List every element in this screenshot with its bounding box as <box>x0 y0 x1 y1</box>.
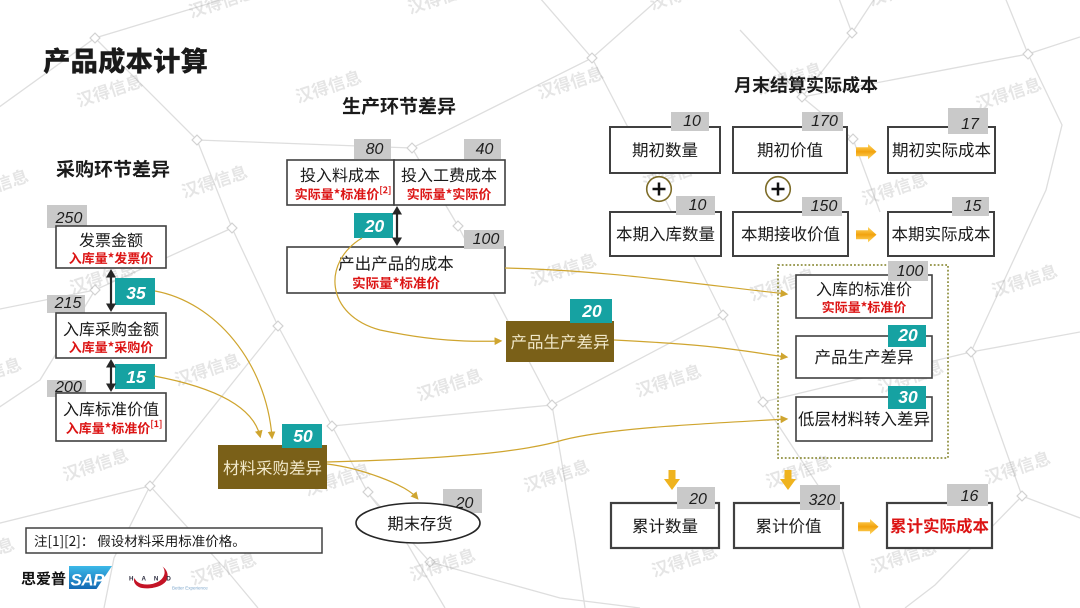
svg-text:10: 10 <box>689 197 707 214</box>
svg-text:150: 150 <box>811 198 838 215</box>
svg-text:20: 20 <box>688 491 707 508</box>
svg-text:HAND: HAND <box>129 576 179 583</box>
svg-text:320: 320 <box>809 492 836 509</box>
svg-text:100: 100 <box>897 263 924 280</box>
svg-text:15: 15 <box>964 198 982 215</box>
svg-text:20: 20 <box>581 301 602 321</box>
svg-text:50: 50 <box>293 426 313 446</box>
svg-text:100: 100 <box>473 231 500 248</box>
svg-text:20: 20 <box>364 216 385 236</box>
svg-text:20: 20 <box>897 325 918 345</box>
svg-text:Better Experience: Better Experience <box>172 586 208 591</box>
svg-text:250: 250 <box>55 210 83 227</box>
svg-text:215: 215 <box>54 295 82 312</box>
svg-text:30: 30 <box>898 387 918 407</box>
svg-text:40: 40 <box>476 141 494 158</box>
svg-text:35: 35 <box>126 283 146 303</box>
svg-text:17: 17 <box>961 116 980 133</box>
svg-text:15: 15 <box>126 367 146 387</box>
svg-text:10: 10 <box>683 113 701 130</box>
svg-text:16: 16 <box>961 488 979 505</box>
svg-text:170: 170 <box>811 113 838 130</box>
svg-text:80: 80 <box>366 141 384 158</box>
svg-text:SAP: SAP <box>71 571 106 590</box>
